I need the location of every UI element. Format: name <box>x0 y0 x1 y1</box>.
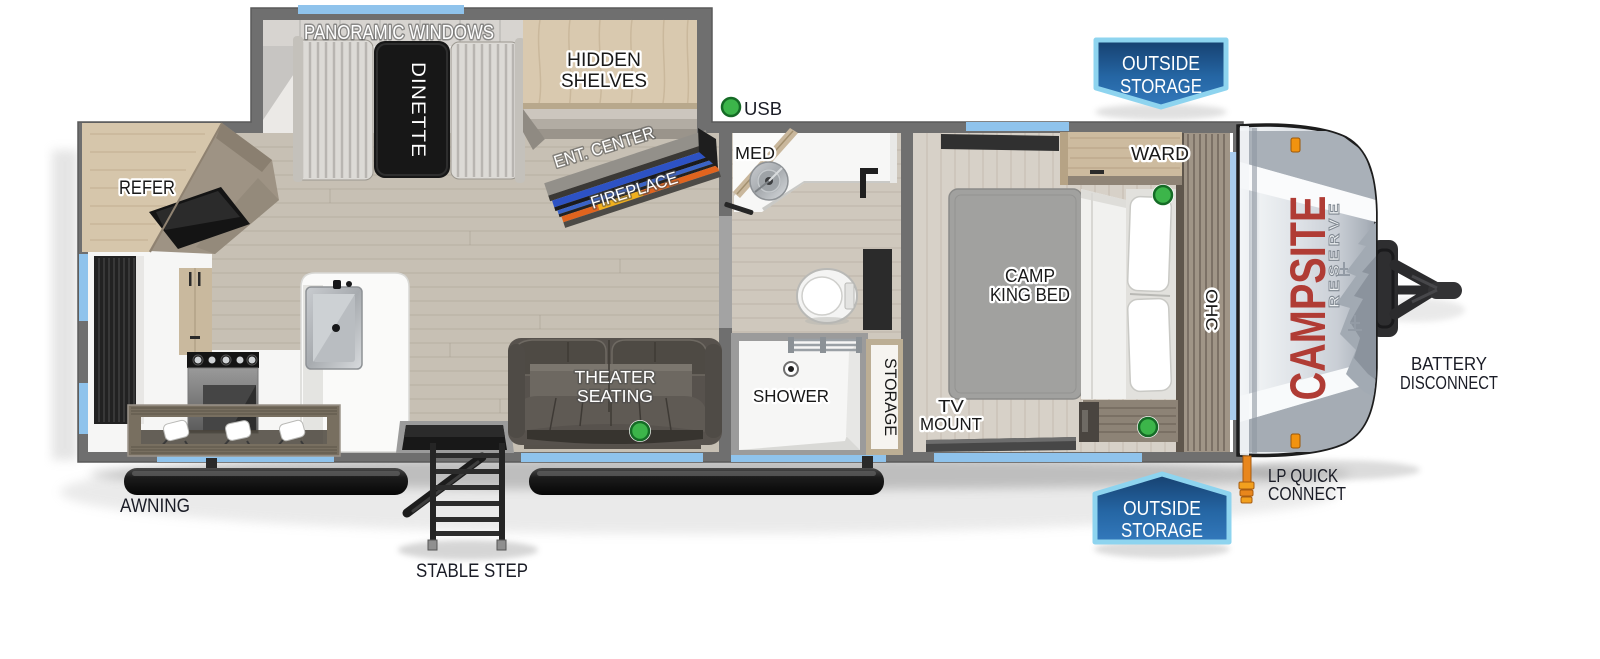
svg-text:BATTERY: BATTERY <box>1411 354 1487 374</box>
svg-text:STABLE STEP: STABLE STEP <box>416 561 528 582</box>
svg-text:DINETTE: DINETTE <box>407 62 428 158</box>
svg-text:MED: MED <box>735 143 775 163</box>
svg-text:HIDDEN: HIDDEN <box>567 50 641 71</box>
svg-text:OUTSIDE: OUTSIDE <box>1122 53 1200 75</box>
svg-text:CONNECT: CONNECT <box>1268 484 1346 504</box>
svg-text:LP QUICK: LP QUICK <box>1268 466 1338 486</box>
svg-text:DISCONNECT: DISCONNECT <box>1400 373 1498 393</box>
svg-text:STORAGE: STORAGE <box>1121 520 1203 542</box>
svg-text:SHOWER: SHOWER <box>753 386 829 406</box>
svg-text:USB: USB <box>744 98 782 119</box>
svg-text:AWNING: AWNING <box>120 496 190 517</box>
svg-text:REFER: REFER <box>119 178 175 199</box>
svg-text:WARD: WARD <box>1131 144 1189 164</box>
svg-text:OUTSIDE: OUTSIDE <box>1123 498 1201 520</box>
svg-text:MOUNT: MOUNT <box>920 414 982 434</box>
svg-text:KING BED: KING BED <box>990 285 1070 305</box>
svg-text:SHELVES: SHELVES <box>561 71 647 92</box>
svg-text:SEATING: SEATING <box>577 386 653 406</box>
svg-text:OHC: OHC <box>1202 289 1220 331</box>
svg-text:STORAGE: STORAGE <box>881 358 899 436</box>
svg-text:PANORAMIC WINDOWS: PANORAMIC WINDOWS <box>304 22 494 44</box>
svg-text:TV: TV <box>938 396 964 416</box>
svg-text:RESERVE: RESERVE <box>1326 200 1343 308</box>
svg-text:CAMP: CAMP <box>1005 266 1055 286</box>
svg-text:THEATER: THEATER <box>575 367 656 387</box>
svg-text:STORAGE: STORAGE <box>1120 76 1202 98</box>
